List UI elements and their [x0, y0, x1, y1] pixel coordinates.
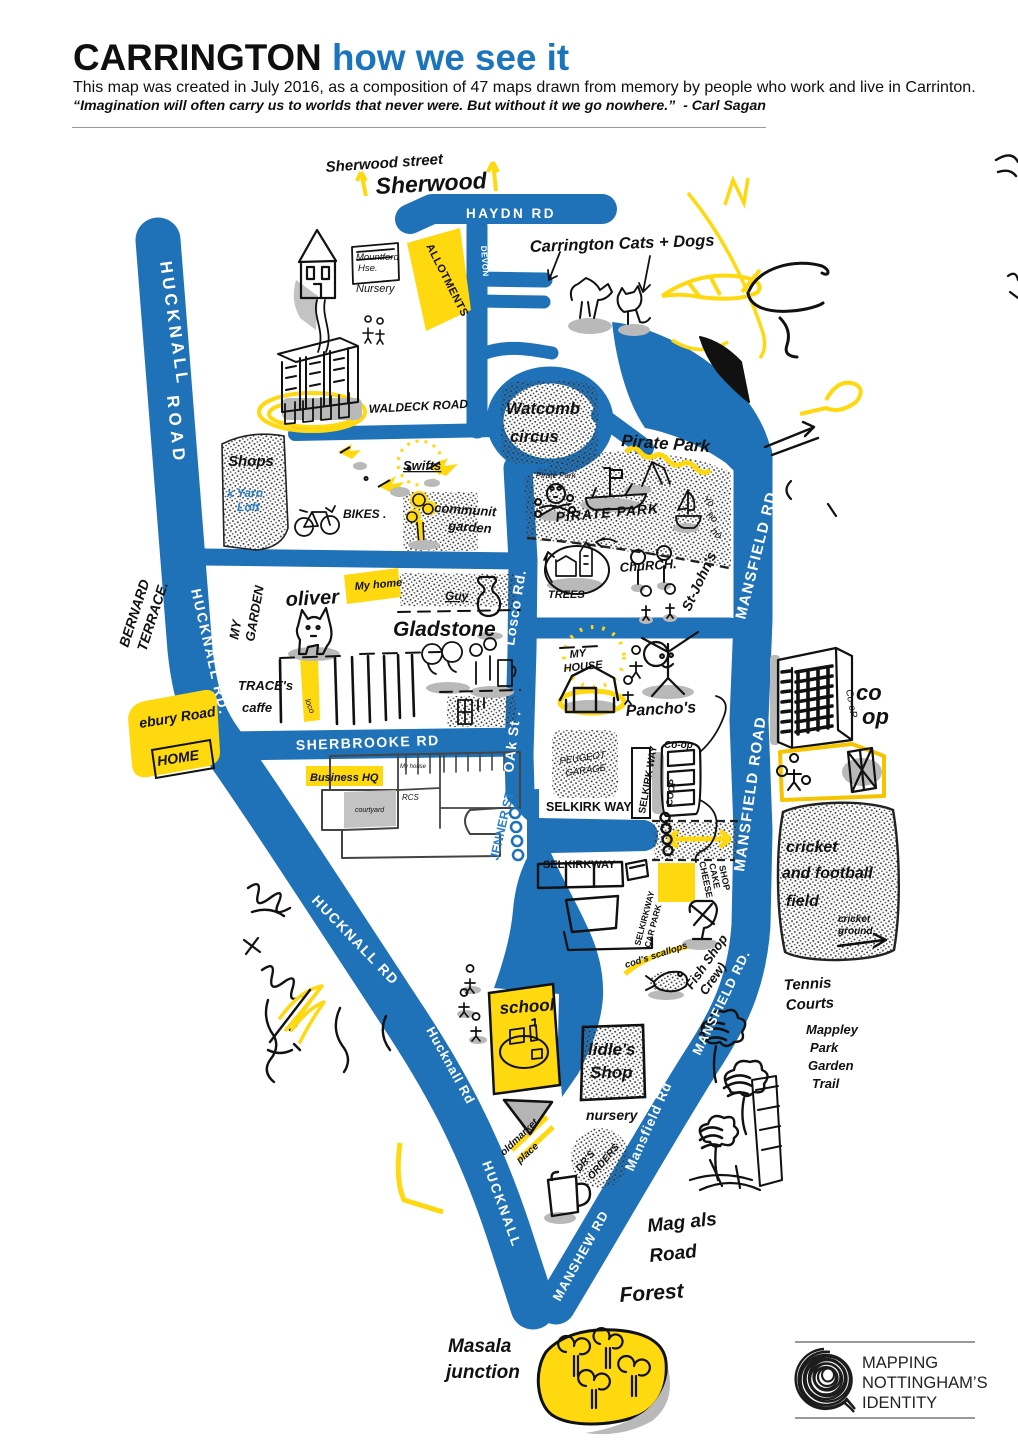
svg-text:courtyard: courtyard	[355, 807, 385, 814]
svg-text:TRACE's: TRACE's	[238, 678, 293, 693]
svg-text:GARDEN: GARDEN	[242, 584, 267, 643]
svg-text:caffe: caffe	[242, 700, 272, 715]
svg-text:lidle's: lidle's	[588, 1040, 636, 1059]
svg-text:nursery: nursery	[586, 1107, 639, 1123]
svg-text:cricket: cricket	[838, 914, 871, 925]
svg-text:circus: circus	[510, 428, 559, 446]
svg-text:Road: Road	[648, 1241, 698, 1267]
svg-text:Courts: Courts	[785, 994, 834, 1014]
svg-text:cricket: cricket	[786, 839, 838, 856]
svg-text:Masala: Masala	[448, 1336, 512, 1357]
svg-text:My house: My house	[400, 764, 427, 770]
svg-text:ChuRCH.: ChuRCH.	[619, 556, 677, 575]
svg-text:Tennis: Tennis	[783, 975, 832, 994]
svg-text:NOTTINGHAM’S: NOTTINGHAM’S	[862, 1374, 988, 1392]
svg-text:Co-op: Co-op	[664, 740, 693, 751]
svg-text:COOP: COOP	[664, 779, 678, 807]
svg-text:SELKIRK WAY: SELKIRK WAY	[546, 800, 632, 814]
svg-text:Shops: Shops	[228, 453, 274, 470]
svg-text:field: field	[786, 893, 820, 910]
svg-text:Nursery: Nursery	[356, 283, 396, 295]
svg-text:ground: ground	[837, 926, 873, 937]
svg-text:school: school	[499, 995, 556, 1018]
svg-text:Shop: Shop	[590, 1063, 633, 1082]
svg-text:co: co	[856, 680, 882, 705]
svg-text:Forest: Forest	[619, 1279, 686, 1306]
svg-text:Gladstone: Gladstone	[393, 618, 496, 641]
svg-text:x Yarn: x Yarn	[226, 486, 263, 500]
svg-text:Park: Park	[810, 1040, 839, 1055]
svg-text:op: op	[862, 704, 889, 729]
svg-text:HOUSE: HOUSE	[563, 659, 604, 675]
svg-text:TREES: TREES	[548, 589, 585, 601]
svg-text:IDENTITY: IDENTITY	[862, 1394, 937, 1412]
svg-text:Trail: Trail	[812, 1076, 840, 1091]
svg-text:BIKES .: BIKES .	[343, 507, 386, 521]
svg-text:oliver: oliver	[285, 586, 341, 611]
svg-text:Hse.: Hse.	[358, 263, 378, 274]
svg-text:Mountford: Mountford	[356, 252, 399, 263]
svg-text:SELKIRKWAY: SELKIRKWAY	[543, 859, 616, 871]
svg-text:Loft: Loft	[237, 500, 261, 514]
svg-text:HAYDN RD: HAYDN RD	[466, 206, 556, 221]
svg-text:Business HQ: Business HQ	[310, 772, 379, 784]
svg-text:Mag als: Mag als	[646, 1209, 718, 1237]
svg-text:Swifts: Swifts	[403, 458, 441, 473]
svg-text:Guy: Guy	[445, 589, 470, 603]
svg-text:and football: and football	[782, 865, 873, 882]
svg-text:Watcomb: Watcomb	[506, 400, 580, 418]
svg-text:Mappley: Mappley	[806, 1022, 859, 1037]
svg-text:RCS: RCS	[402, 793, 420, 802]
svg-text:junction: junction	[443, 1362, 520, 1383]
svg-text:WALDECK ROAD: WALDECK ROAD	[368, 397, 468, 416]
svg-text:garden: garden	[447, 518, 492, 536]
svg-text:Pancho's: Pancho's	[625, 699, 696, 720]
svg-text:Garden: Garden	[808, 1058, 854, 1073]
svg-text:Pirate Park: Pirate Park	[536, 471, 577, 480]
svg-text:MY: MY	[569, 647, 588, 661]
svg-text:MAPPING: MAPPING	[862, 1354, 938, 1372]
svg-text:Carrington Cats + Dogs: Carrington Cats + Dogs	[530, 232, 715, 256]
